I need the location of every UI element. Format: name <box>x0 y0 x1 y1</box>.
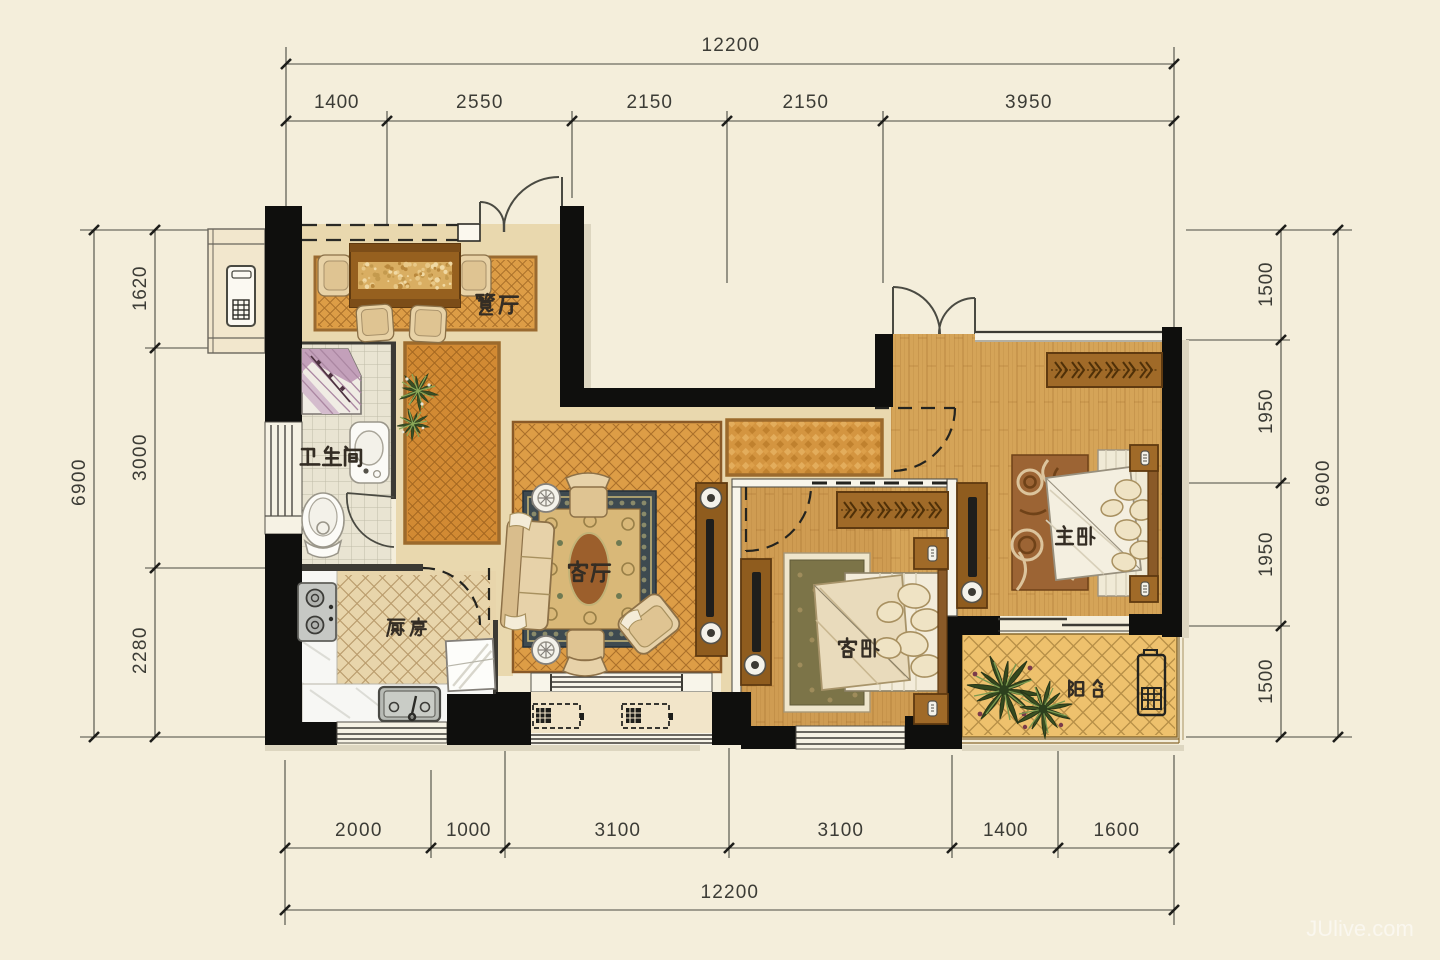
svg-text:3000: 3000 <box>130 435 151 481</box>
svg-text:1500: 1500 <box>1256 263 1277 307</box>
svg-text:1000: 1000 <box>446 820 490 841</box>
svg-text:2150: 2150 <box>627 92 672 113</box>
svg-text:1950: 1950 <box>1256 533 1277 577</box>
svg-text:1600: 1600 <box>1094 820 1139 841</box>
svg-text:12200: 12200 <box>701 882 758 903</box>
svg-text:1500: 1500 <box>1256 660 1277 704</box>
svg-text:12200: 12200 <box>702 35 759 56</box>
svg-text:JUlive.com: JUlive.com <box>1306 916 1414 941</box>
svg-text:2000: 2000 <box>335 820 381 841</box>
svg-text:2150: 2150 <box>783 92 828 113</box>
svg-text:1620: 1620 <box>130 267 151 311</box>
svg-text:3100: 3100 <box>595 820 640 841</box>
svg-text:2550: 2550 <box>456 92 502 113</box>
svg-text:1400: 1400 <box>983 820 1027 841</box>
svg-text:6900: 6900 <box>1313 461 1334 507</box>
svg-text:1400: 1400 <box>314 92 358 113</box>
svg-text:1950: 1950 <box>1256 390 1277 434</box>
svg-text:2280: 2280 <box>130 628 151 674</box>
svg-text:3950: 3950 <box>1005 92 1051 113</box>
svg-text:6900: 6900 <box>69 460 90 506</box>
svg-text:3100: 3100 <box>818 820 863 841</box>
